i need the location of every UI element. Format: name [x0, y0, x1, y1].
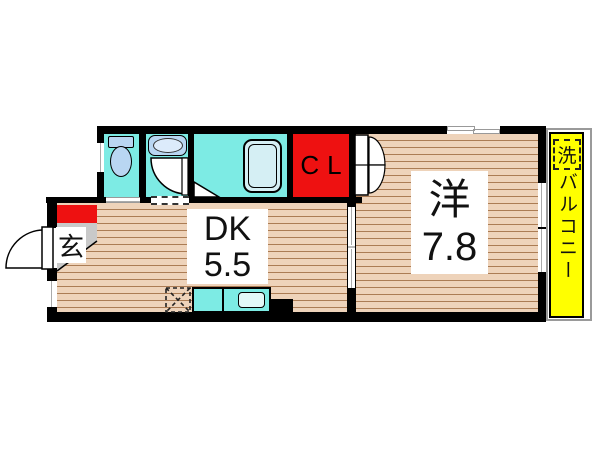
- doors-overlay: [0, 0, 600, 450]
- floor-plan: 洗 バルコニー CL: [0, 0, 600, 450]
- bathroom-door-wedge: [194, 182, 219, 197]
- entrance-label-box: 玄: [56, 227, 86, 263]
- dk-label-box: DK 5.5: [187, 209, 268, 284]
- closet-door-arc-top: [369, 137, 385, 165]
- western-room-label: 洋: [428, 176, 470, 224]
- entrance-door-leaf: [42, 227, 53, 269]
- entrance-label: 玄: [58, 227, 84, 264]
- washroom-door-leaf: [182, 158, 188, 195]
- western-room-label-box: 洋 7.8: [411, 171, 488, 274]
- closet-door-arc-bottom: [369, 165, 385, 193]
- entrance-door-arc: [6, 230, 44, 268]
- western-room-size: 7.8: [422, 224, 478, 270]
- fridge-space: [166, 288, 190, 312]
- dk-label: DK: [204, 211, 251, 247]
- dk-size: 5.5: [204, 247, 251, 283]
